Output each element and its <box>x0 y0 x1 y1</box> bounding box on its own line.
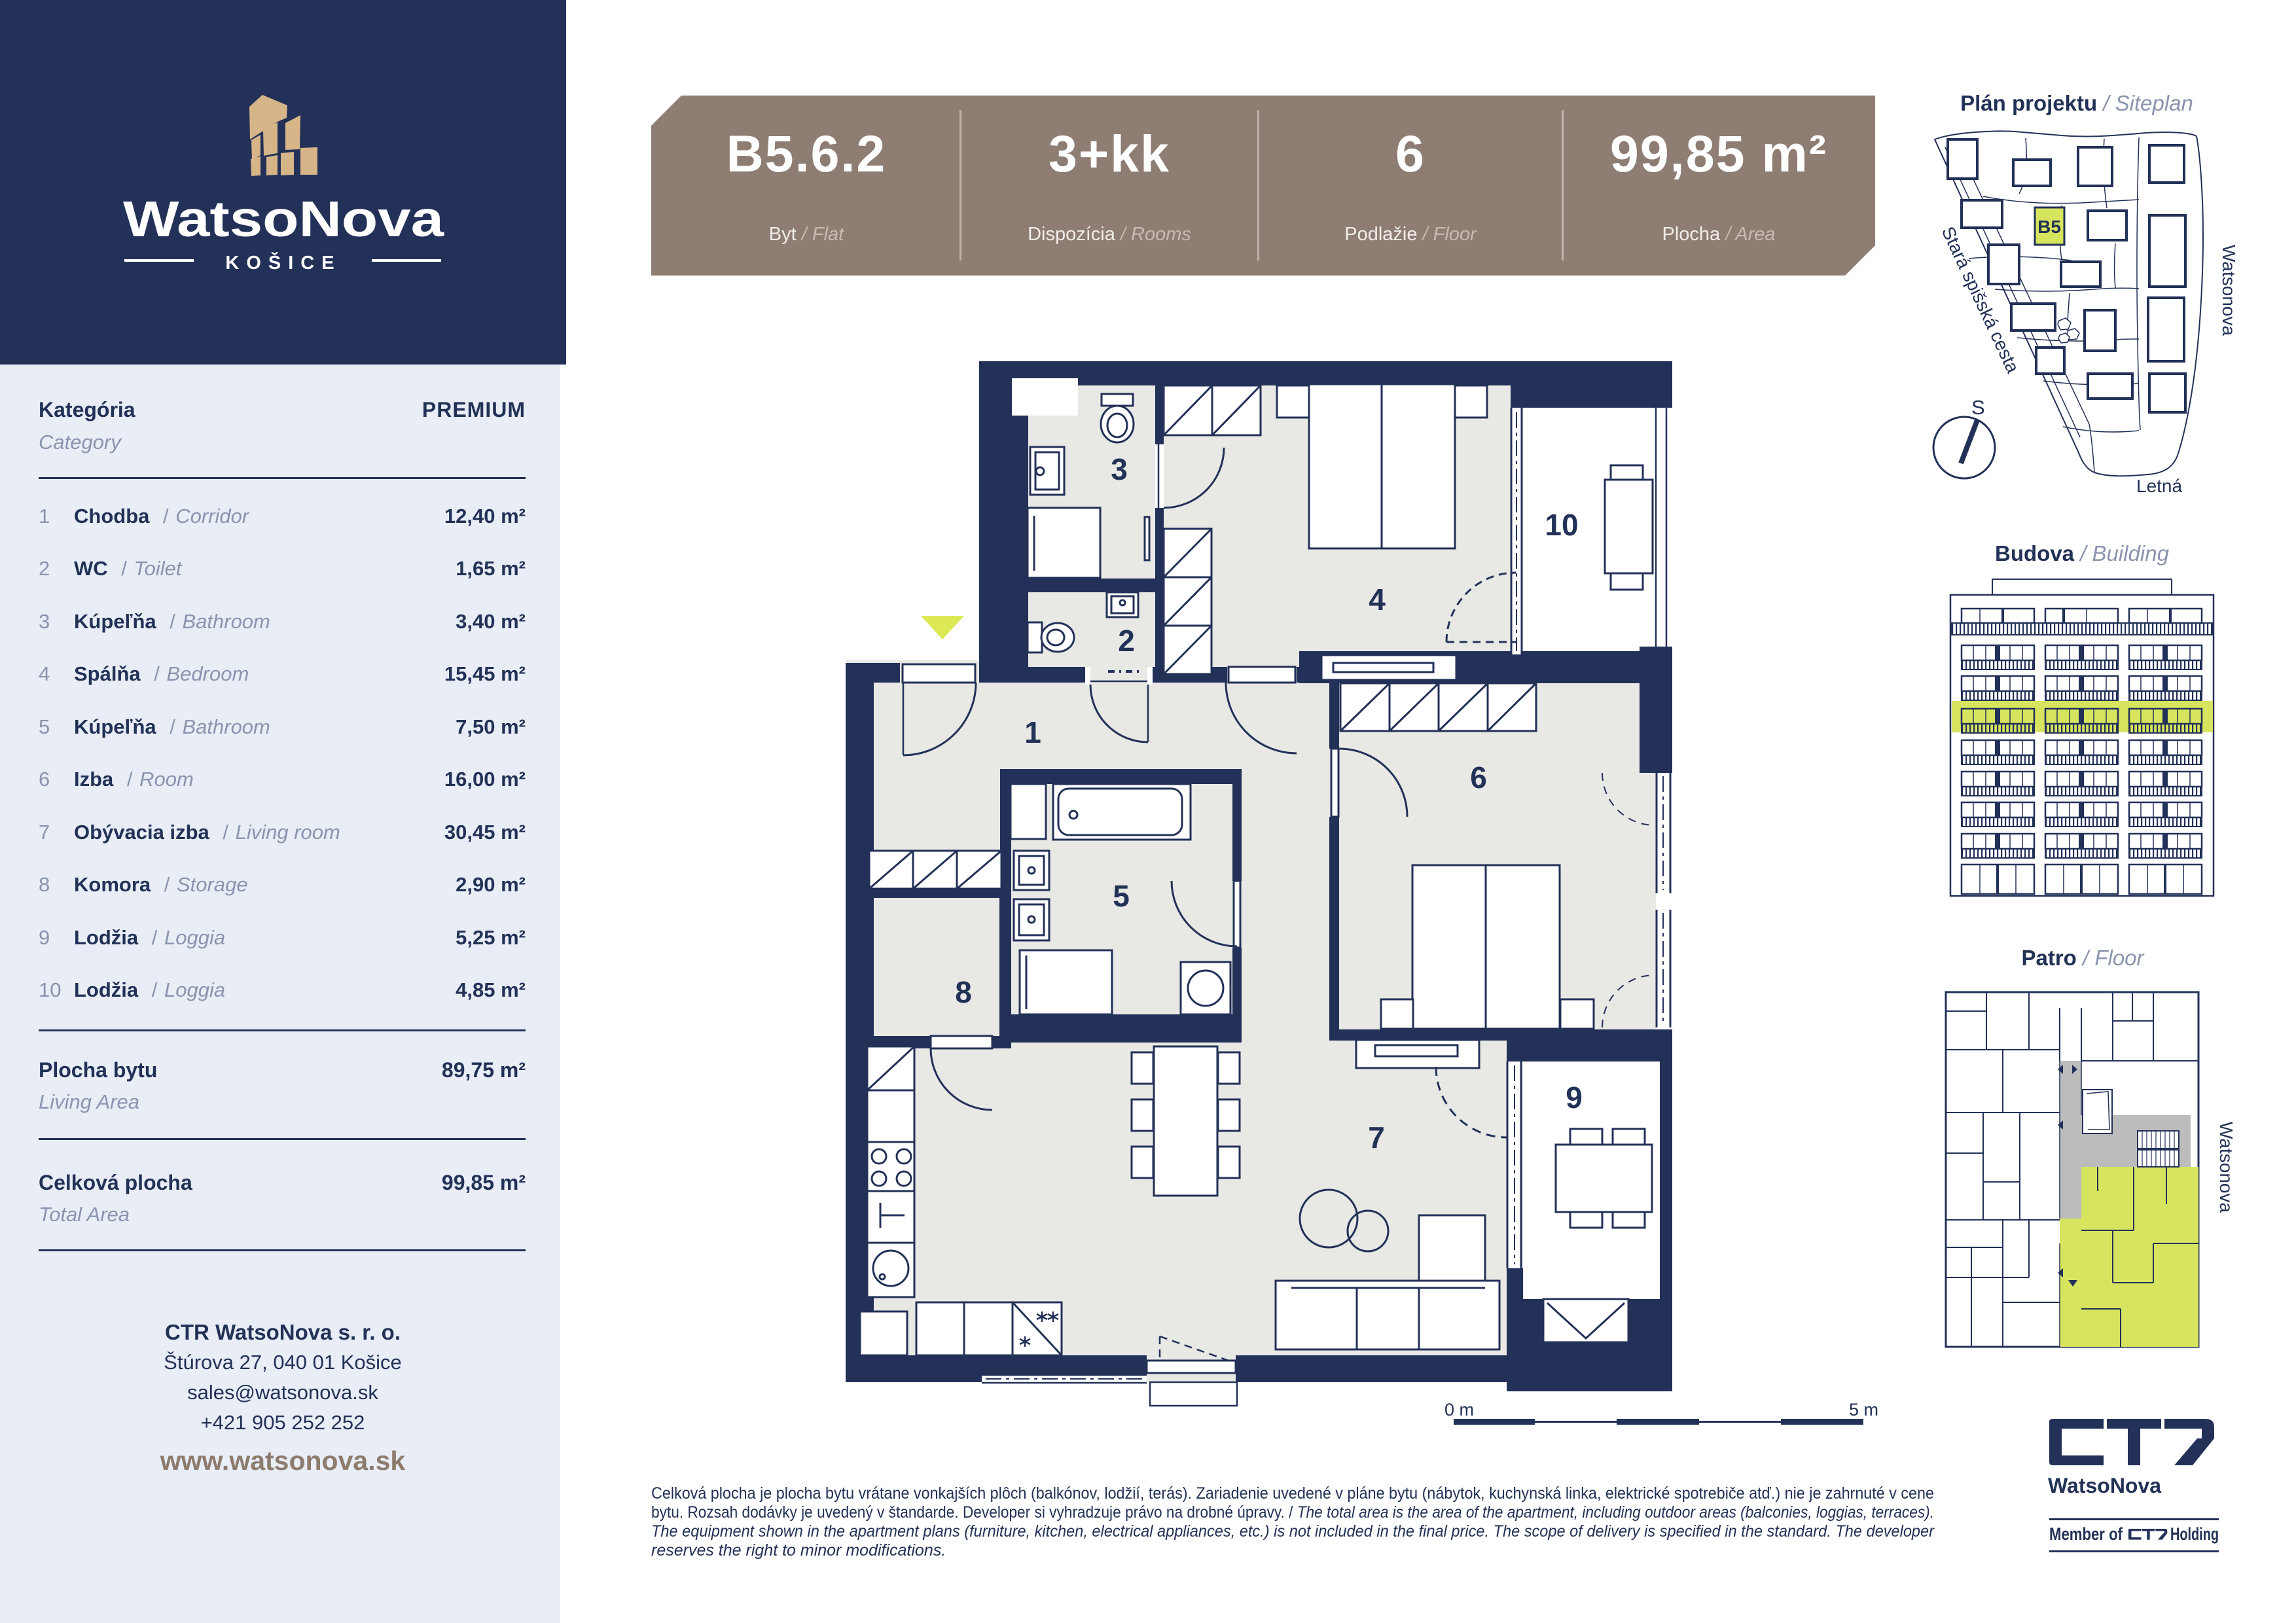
svg-text:WatsoNova: WatsoNova <box>2048 1474 2161 1497</box>
svg-text:4,85 m²: 4,85 m² <box>456 978 526 1001</box>
svg-text:5: 5 <box>1113 879 1130 913</box>
svg-text:12,40 m²: 12,40 m² <box>444 505 526 527</box>
svg-text:Plocha bytu: Plocha bytu <box>39 1058 157 1082</box>
svg-text:Category: Category <box>39 431 122 454</box>
svg-text:Patro / Floor: Patro / Floor <box>2021 946 2145 970</box>
svg-text:7,50 m²: 7,50 m² <box>456 715 526 738</box>
svg-text:Plán projektu / Siteplan: Plán projektu / Siteplan <box>1960 91 2193 115</box>
svg-text:3Kúpeľňa / Bathroom: 3Kúpeľňa / Bathroom <box>39 610 270 633</box>
svg-text:KOŠICE: KOŠICE <box>225 251 341 274</box>
svg-text:3: 3 <box>1111 452 1128 486</box>
svg-text:Member of: Member of <box>2049 1524 2123 1544</box>
svg-text:+421 905 252 252: +421 905 252 252 <box>201 1411 365 1434</box>
svg-text:9: 9 <box>1566 1080 1583 1115</box>
svg-text:Kategória: Kategória <box>39 398 135 421</box>
svg-text:Podlažie / Floor: Podlažie / Floor <box>1344 224 1477 245</box>
svg-text:Štúrova 27, 040 01 Košice: Štúrova 27, 040 01 Košice <box>164 1351 402 1374</box>
svg-text:5 m: 5 m <box>1849 1400 1878 1419</box>
svg-text:Budova / Building: Budova / Building <box>1995 541 2170 565</box>
svg-text:7: 7 <box>1368 1120 1385 1154</box>
svg-text:Total Area: Total Area <box>39 1203 130 1226</box>
svg-text:30,45 m²: 30,45 m² <box>444 821 526 844</box>
svg-text:S: S <box>1971 396 1985 419</box>
svg-text:99,85 m²: 99,85 m² <box>1610 124 1827 183</box>
svg-text:Celková plocha: Celková plocha <box>39 1171 192 1194</box>
svg-text:8: 8 <box>955 975 972 1009</box>
svg-text:6: 6 <box>1395 124 1426 183</box>
svg-text:bytu. Rozsah dodávky je uveden: bytu. Rozsah dodávky je uvedený v štanda… <box>651 1503 1934 1522</box>
svg-text:Celková plocha je plocha bytu: Celková plocha je plocha bytu vrátane vo… <box>651 1484 1934 1503</box>
svg-text:Letná: Letná <box>2136 476 2182 496</box>
svg-text:89,75 m²: 89,75 m² <box>442 1058 526 1082</box>
svg-text:Byt / Flat: Byt / Flat <box>769 224 845 245</box>
svg-text:Dispozícia / Rooms: Dispozícia / Rooms <box>1028 224 1191 245</box>
svg-text:Watsonova: Watsonova <box>2216 1122 2236 1213</box>
svg-text:www.watsonova.sk: www.watsonova.sk <box>160 1446 406 1476</box>
svg-text:99,85 m²: 99,85 m² <box>442 1171 526 1194</box>
svg-text:1: 1 <box>1024 715 1041 749</box>
svg-text:2: 2 <box>1118 624 1135 658</box>
svg-text:0 m: 0 m <box>1444 1400 1474 1419</box>
svg-text:Plocha / Area: Plocha / Area <box>1662 224 1775 245</box>
svg-text:1,65 m²: 1,65 m² <box>456 557 526 580</box>
svg-text:3,40 m²: 3,40 m² <box>456 610 526 633</box>
svg-text:5,25 m²: 5,25 m² <box>456 926 526 949</box>
svg-text:sales@watsonova.sk: sales@watsonova.sk <box>187 1381 378 1404</box>
svg-text:B5.6.2: B5.6.2 <box>726 124 887 183</box>
svg-text:WatsoNova: WatsoNova <box>123 191 444 247</box>
svg-text:The equipment shown in the apa: The equipment shown in the apartment pla… <box>651 1522 1935 1541</box>
svg-text:16,00 m²: 16,00 m² <box>444 768 526 791</box>
svg-text:3+kk: 3+kk <box>1049 124 1170 183</box>
svg-text:Holding: Holding <box>2170 1524 2219 1544</box>
svg-text:Living Area: Living Area <box>39 1090 139 1113</box>
svg-text:15,45 m²: 15,45 m² <box>444 662 526 685</box>
svg-text:reserves the right to minor mo: reserves the right to minor modification… <box>651 1541 946 1560</box>
svg-text:B5: B5 <box>2037 217 2061 237</box>
svg-text:7Obývacia izba / Living room: 7Obývacia izba / Living room <box>39 821 340 844</box>
svg-text:2,90 m²: 2,90 m² <box>456 873 526 896</box>
svg-text:Watsonova: Watsonova <box>2219 245 2239 336</box>
svg-text:4: 4 <box>1369 582 1386 616</box>
svg-text:CTR WatsoNova s. r. o.: CTR WatsoNova s. r. o. <box>165 1320 401 1344</box>
svg-text:PREMIUM: PREMIUM <box>422 398 526 421</box>
svg-text:5Kúpeľňa / Bathroom: 5Kúpeľňa / Bathroom <box>39 715 270 738</box>
svg-text:10: 10 <box>1545 508 1578 542</box>
svg-text:6: 6 <box>1470 760 1487 794</box>
